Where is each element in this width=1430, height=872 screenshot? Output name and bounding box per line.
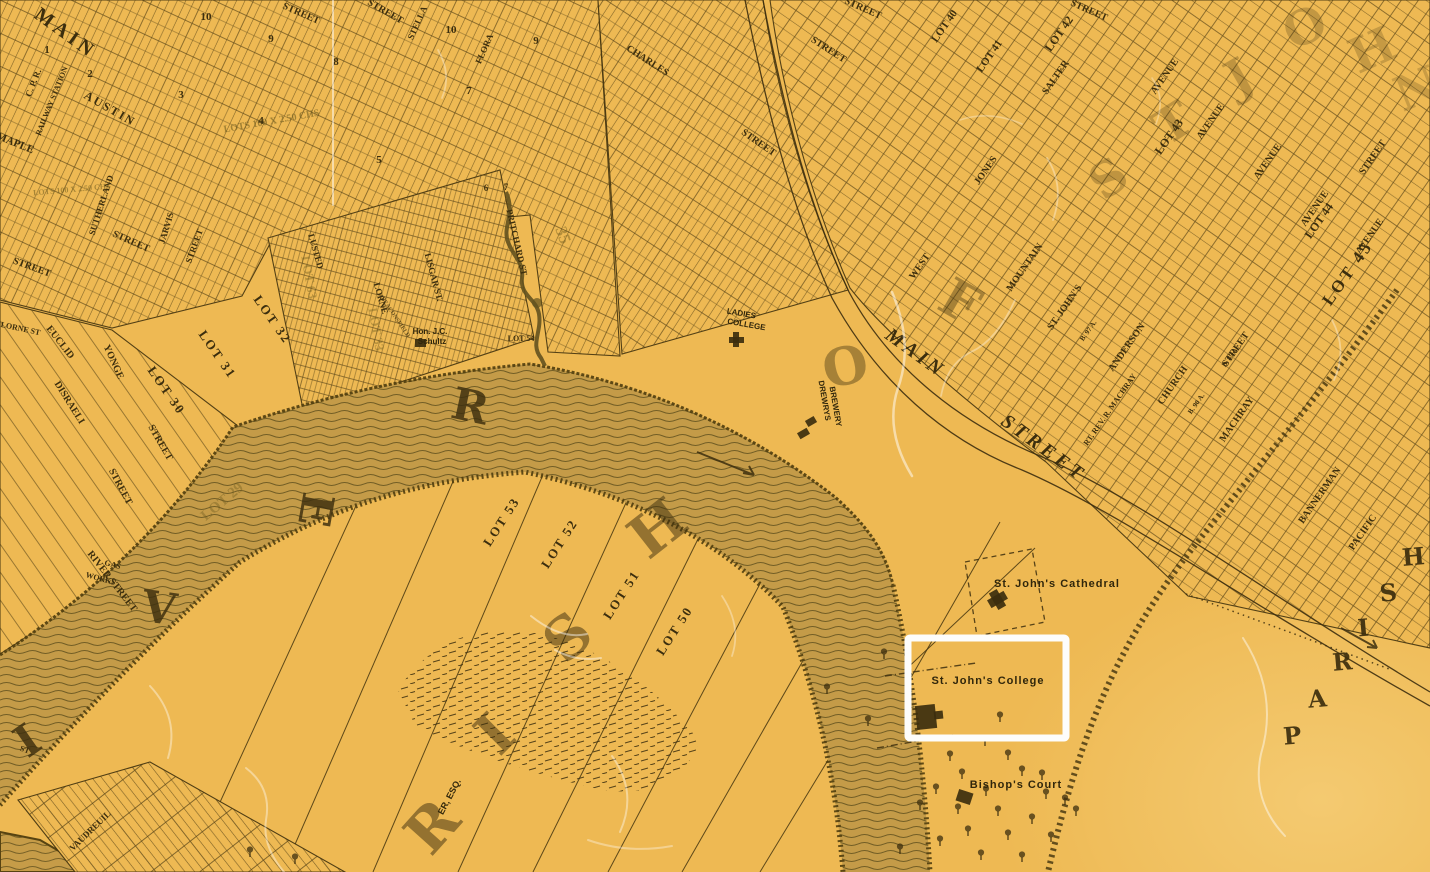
- giant-map-letter: S: [1378, 577, 1398, 607]
- map-label: Schultz: [418, 337, 446, 346]
- map-label: 2: [87, 68, 93, 80]
- giant-map-letter: H: [1401, 541, 1426, 572]
- map-label: St. John's College: [932, 675, 1045, 687]
- building-footprint: [934, 711, 944, 720]
- creek-pond: [532, 298, 542, 308]
- map-label: 8: [333, 56, 339, 68]
- map-label: 9: [268, 33, 274, 45]
- giant-map-letter: R: [1331, 646, 1354, 677]
- map-label: 6: [484, 183, 489, 193]
- map-label: LOT 54: [508, 334, 535, 343]
- building-footprint: [915, 704, 937, 730]
- map-label: Bishop's Court: [970, 779, 1062, 791]
- map-label: 1: [44, 44, 50, 56]
- map-label: 7: [466, 85, 472, 97]
- building-footprint: [733, 332, 739, 347]
- map-label: 4: [258, 115, 264, 127]
- map-viewport: REVIRISHOFSTJOHNPARISHMAINC. P. R.RAILWA…: [0, 0, 1430, 872]
- map-label: 7: [504, 182, 509, 192]
- map-label: 9: [533, 35, 539, 47]
- map-label: St. John's Cathedral: [994, 578, 1120, 590]
- map-label: Hon. J.C.: [413, 327, 448, 336]
- giant-map-letter: A: [1306, 683, 1328, 714]
- map-canvas: REVIRISHOFSTJOHNPARISHMAINC. P. R.RAILWA…: [0, 0, 1430, 872]
- giant-map-letter: P: [1282, 720, 1303, 750]
- map-label: 10: [201, 11, 213, 23]
- map-label: 5: [376, 154, 382, 166]
- map-label: 3: [178, 89, 184, 101]
- map-label: 10: [446, 24, 458, 36]
